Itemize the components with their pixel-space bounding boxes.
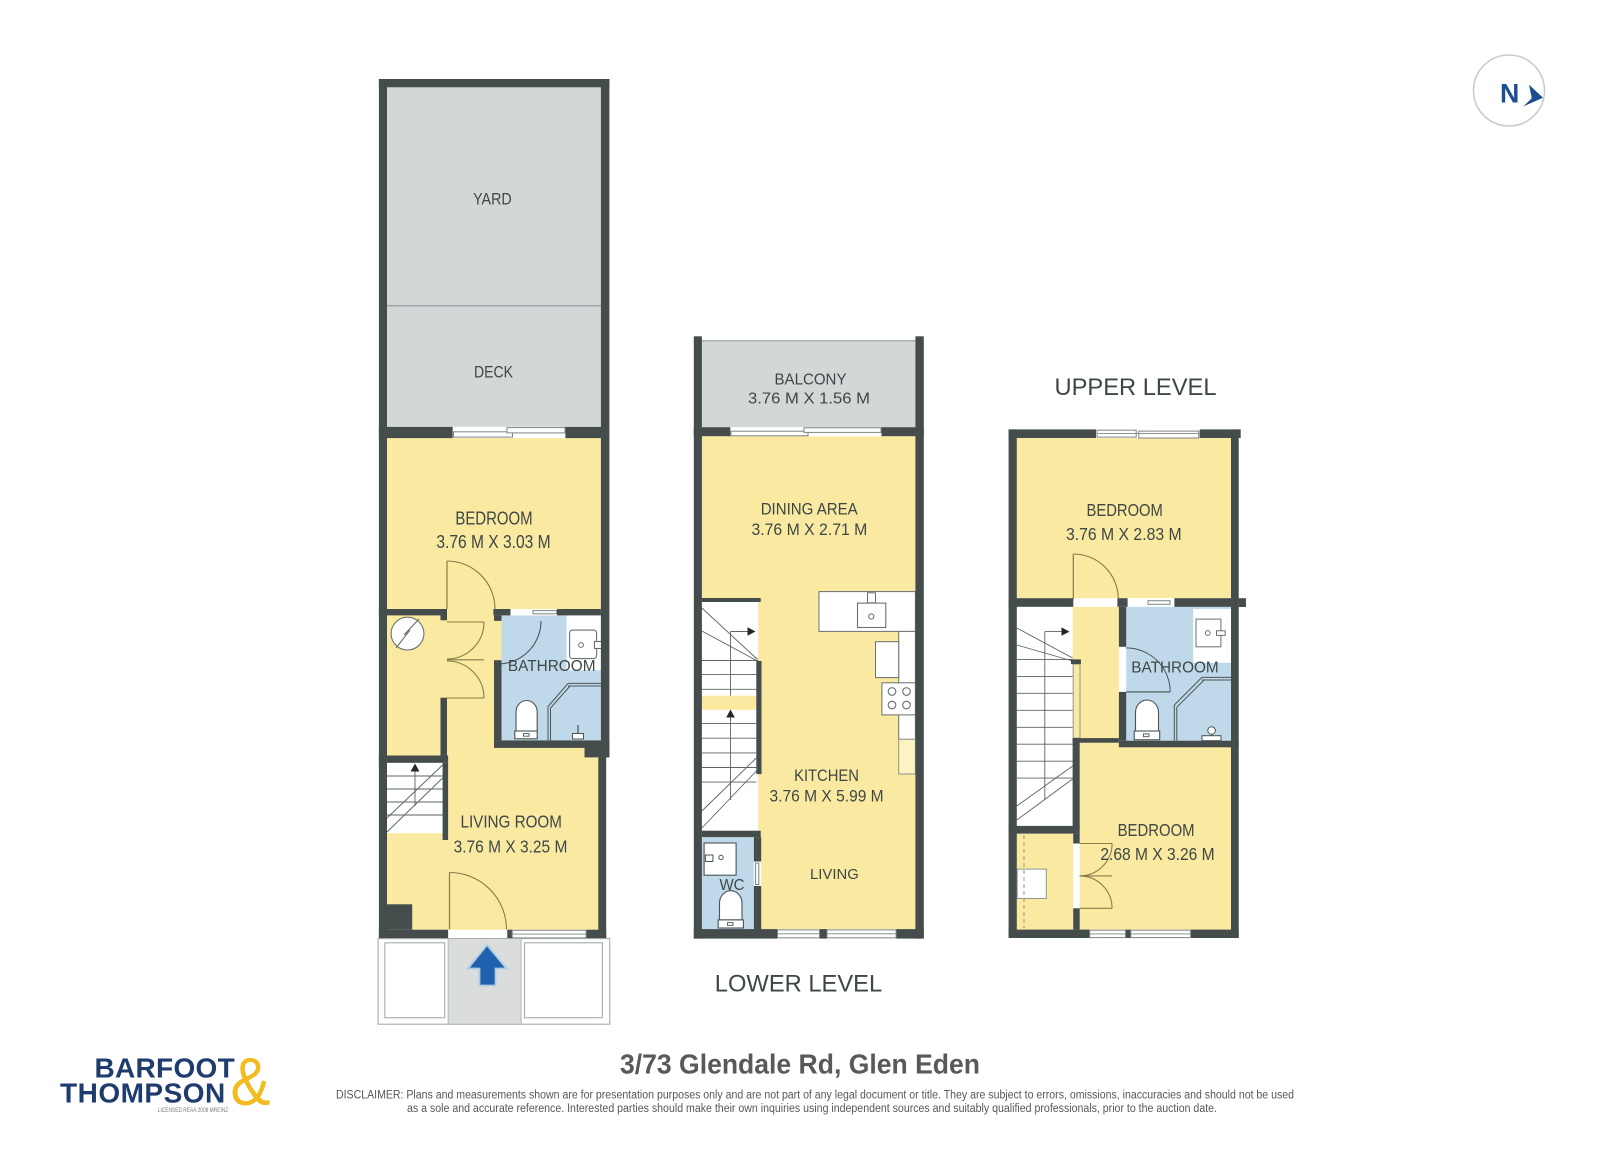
svg-text:LIVING: LIVING (810, 867, 859, 883)
svg-text:THOMPSON: THOMPSON (60, 1078, 226, 1109)
svg-text:3.76 M X 2.83 M: 3.76 M X 2.83 M (1066, 524, 1182, 544)
svg-text:&: & (231, 1044, 271, 1120)
svg-text:LOWER LEVEL: LOWER LEVEL (715, 970, 882, 997)
svg-text:DISCLAIMER: Plans and measurem: DISCLAIMER: Plans and measurements shown… (336, 1090, 1294, 1102)
svg-text:BATHROOM: BATHROOM (1131, 659, 1218, 676)
svg-text:3.76 M X 5.99 M: 3.76 M X 5.99 M (770, 786, 884, 805)
svg-text:BALCONY: BALCONY (775, 372, 847, 389)
svg-text:KITCHEN: KITCHEN (794, 766, 859, 785)
svg-text:3.76 M X 3.03 M: 3.76 M X 3.03 M (436, 532, 550, 552)
svg-text:BATHROOM: BATHROOM (508, 658, 596, 675)
svg-text:UPPER LEVEL: UPPER LEVEL (1055, 374, 1217, 401)
svg-text:BEDROOM: BEDROOM (455, 509, 532, 529)
svg-text:WC: WC (720, 877, 745, 894)
svg-text:DECK: DECK (474, 364, 513, 382)
svg-text:3.76 M X 1.56 M: 3.76 M X 1.56 M (748, 391, 870, 408)
svg-text:N: N (1500, 79, 1519, 109)
svg-text:BEDROOM: BEDROOM (1087, 500, 1163, 520)
svg-text:3/73 Glendale Rd, Glen Eden: 3/73 Glendale Rd, Glen Eden (620, 1049, 980, 1080)
svg-text:YARD: YARD (473, 190, 512, 208)
svg-text:LIVING ROOM: LIVING ROOM (461, 812, 562, 832)
svg-text:3.76 M X 2.71 M: 3.76 M X 2.71 M (751, 520, 867, 539)
svg-text:DINING AREA: DINING AREA (761, 500, 859, 519)
svg-text:2.68 M X 3.26 M: 2.68 M X 3.26 M (1100, 844, 1214, 864)
svg-text:LICENSED REAA 2008 MREINZ: LICENSED REAA 2008 MREINZ (158, 1108, 229, 1114)
svg-text:3.76 M X 3.25 M: 3.76 M X 3.25 M (454, 836, 568, 856)
svg-text:BEDROOM: BEDROOM (1118, 820, 1195, 840)
svg-text:as a sole and accurate referen: as a sole and accurate reference. Intere… (407, 1103, 1217, 1115)
